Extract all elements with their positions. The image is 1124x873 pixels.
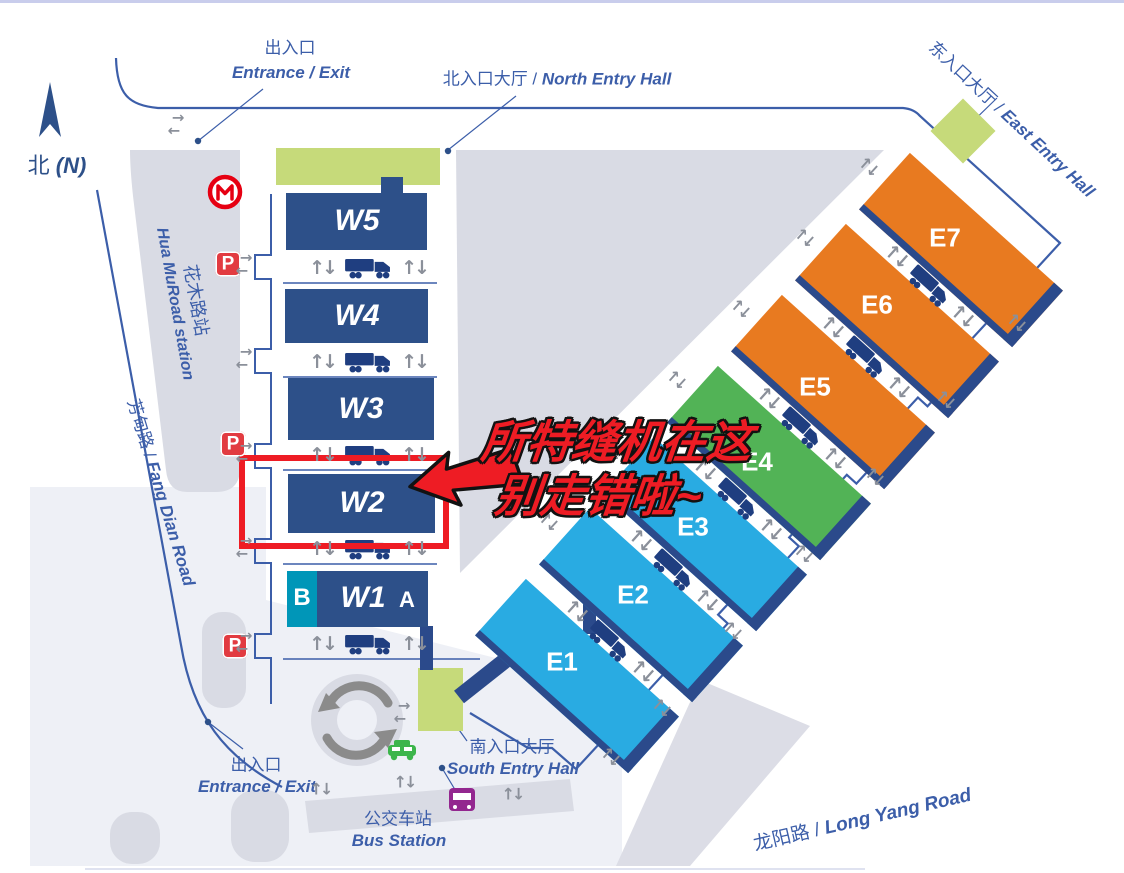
- up-down-arrows-icon: ↑↓: [502, 785, 523, 804]
- hall-e7-label: E7: [929, 223, 961, 254]
- hall-e5-label: E5: [799, 372, 831, 403]
- up-down-arrows-icon: ↑↓: [394, 773, 415, 792]
- up-down-arrows-icon: ↑↓: [401, 351, 427, 373]
- up-down-arrows-icon: ↑↓: [309, 538, 335, 560]
- truck-icon: [345, 353, 390, 372]
- hall-w2-label: W2: [340, 486, 385, 520]
- hall-w5-label: W5: [335, 204, 380, 238]
- hall-w3-label: W3: [339, 392, 384, 426]
- south-entry-hall-box: [418, 668, 463, 731]
- left-arrow-icon: ←: [236, 358, 253, 371]
- two-way-arrows-icon: →←: [172, 111, 185, 137]
- south-entry-label-en: South Entry Hall: [447, 759, 579, 779]
- roundabout-center: [337, 700, 377, 740]
- left-arrow-icon: ←: [236, 642, 253, 655]
- gray-blob-bottom-left: [110, 812, 160, 864]
- gray-blob-bottom: [231, 790, 289, 862]
- bottom-entrance-label-zh: 出入口: [231, 751, 282, 776]
- red-annotation-line2: 别走错啦~: [492, 460, 705, 525]
- bus-icon: [449, 788, 475, 811]
- north-entry-label-zh: 北入口大厅 /: [443, 70, 537, 89]
- left-arrow-icon: ←: [236, 547, 253, 560]
- up-down-arrows-icon: ↑↓: [309, 257, 335, 279]
- up-down-arrows-icon: ↑↓: [401, 444, 427, 466]
- top-entrance-label-en: Entrance / Exit: [232, 63, 350, 83]
- up-down-arrows-icon: ↑↓: [309, 444, 335, 466]
- hall-e2-label: E2: [617, 580, 649, 611]
- up-down-arrows-icon: ↑↓: [401, 633, 427, 655]
- two-way-arrows-icon: →←: [240, 345, 253, 371]
- up-down-arrows-icon: ↑↓: [309, 633, 335, 655]
- top-entrance-label-zh: 出入口: [265, 34, 316, 59]
- bus-station-label-zh: 公交车站: [364, 805, 432, 830]
- up-down-arrows-icon: ↑↓: [310, 780, 331, 799]
- hall-w4-label: W4: [335, 299, 380, 333]
- left-arrow-icon: ←: [394, 712, 411, 725]
- north-entry-label: 北入口大厅 / North Entry Hall: [443, 65, 672, 90]
- hall-e6-label: E6: [861, 290, 893, 321]
- hall-w1-section-a-label: A: [399, 587, 415, 613]
- two-way-arrows-icon: →←: [240, 439, 253, 465]
- truck-icon: [345, 540, 390, 559]
- hall-e1-label: E1: [546, 647, 578, 678]
- metro-logo-icon: [210, 177, 240, 207]
- two-way-arrows-icon: →←: [240, 251, 253, 277]
- north-entry-hall-box: [276, 148, 440, 185]
- north-entry-label-en: North Entry Hall: [542, 70, 671, 89]
- expo-map: 出入口 Entrance / Exit 北入口大厅 / North Entry …: [0, 0, 1124, 873]
- bus-station-label-en: Bus Station: [352, 831, 446, 851]
- up-down-arrows-icon: ↑↓: [401, 538, 427, 560]
- truck-icon: [345, 259, 390, 278]
- left-arrow-icon: ←: [168, 124, 185, 137]
- south-entry-label-zh: 南入口大厅: [470, 733, 555, 758]
- two-way-arrows-icon: →←: [240, 534, 253, 560]
- hall-w1-label: W1: [341, 581, 386, 615]
- two-way-arrows-icon: →←: [398, 699, 411, 725]
- compass-label-en: (N): [56, 153, 87, 178]
- hall-w5-tab: [381, 177, 403, 195]
- up-down-arrows-icon: ↑↓: [401, 257, 427, 279]
- hall-w1-section-b-label: B: [293, 584, 310, 612]
- up-down-arrows-icon: ↑↓: [309, 351, 335, 373]
- left-arrow-icon: ←: [236, 452, 253, 465]
- left-arrow-icon: ←: [236, 264, 253, 277]
- compass-label: 北 (N): [28, 148, 87, 180]
- top-border-bar: [0, 0, 1124, 3]
- compass-label-zh: 北: [28, 153, 50, 178]
- bottom-entrance-label-en: Entrance / Exit: [198, 777, 316, 797]
- north-compass-icon: [39, 82, 61, 137]
- two-way-arrows-icon: →←: [240, 629, 253, 655]
